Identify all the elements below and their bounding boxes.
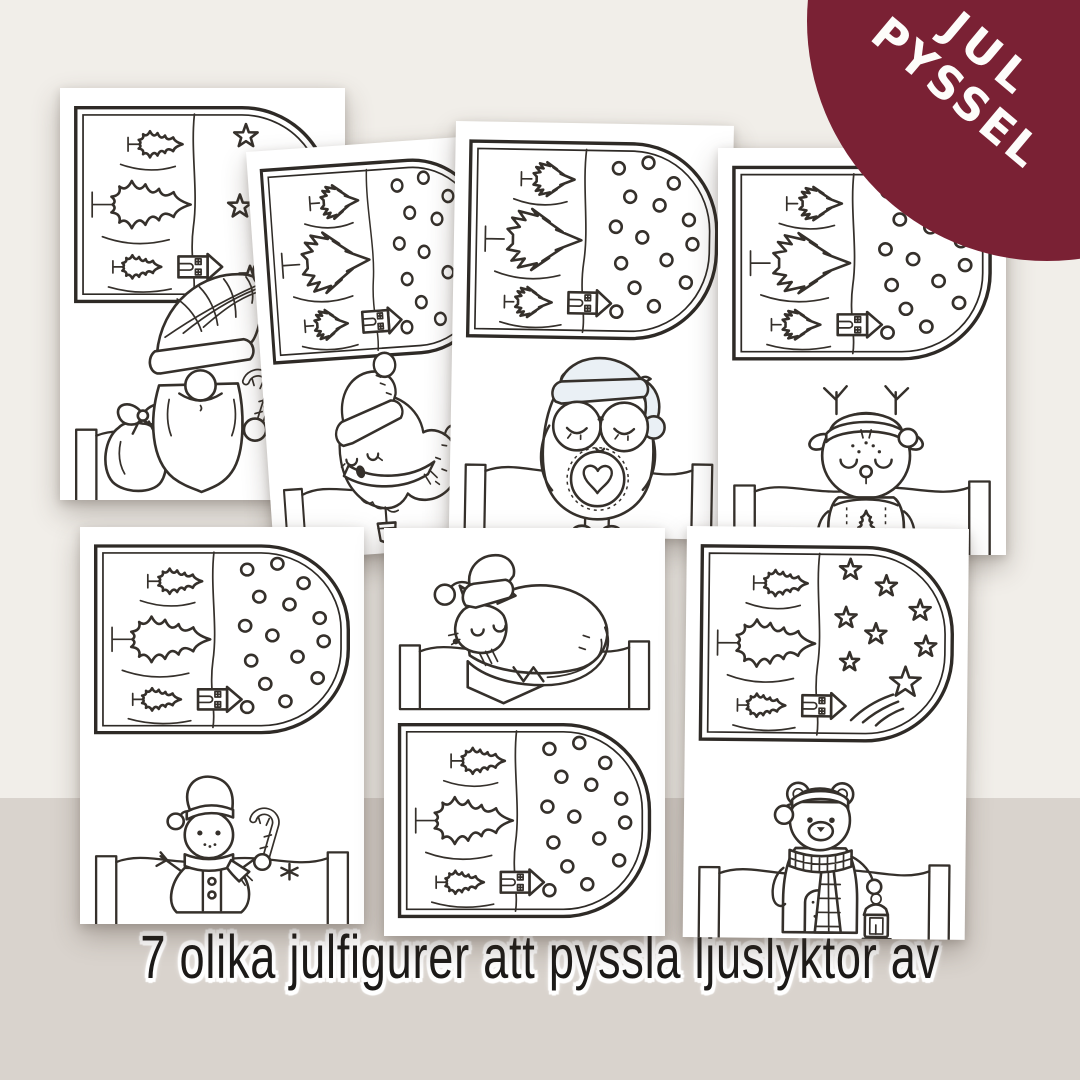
- scene: [96, 546, 349, 733]
- card-owl-lantern: [449, 121, 734, 540]
- owl-character: [540, 357, 666, 538]
- fox-character: [435, 555, 608, 703]
- scene: [700, 546, 953, 742]
- polar-bear-character: [772, 783, 892, 940]
- promo-image: JUL PYSSEL 7 olika julfigurer att pyssla…: [0, 0, 1080, 1080]
- snowman-character: [157, 777, 298, 913]
- card-fox-lantern: [384, 528, 665, 936]
- card-snowman-lantern: [80, 527, 364, 924]
- card-polar-bear-lantern: [683, 526, 969, 940]
- scene: [400, 725, 650, 917]
- scene: [468, 141, 719, 340]
- reindeer-character: [807, 386, 925, 549]
